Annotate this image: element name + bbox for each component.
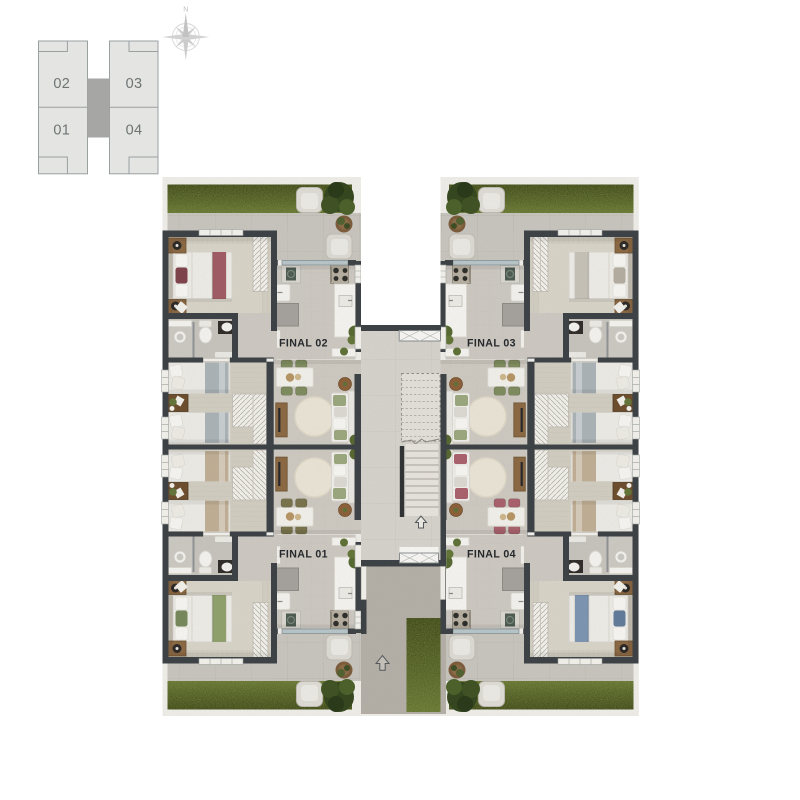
svg-text:N: N xyxy=(183,7,188,14)
svg-text:FINAL 02: FINAL 02 xyxy=(279,338,328,350)
svg-text:03: 03 xyxy=(126,76,143,92)
svg-text:01: 01 xyxy=(53,123,70,139)
svg-text:04: 04 xyxy=(126,123,143,139)
svg-text:FINAL 04: FINAL 04 xyxy=(467,549,516,561)
svg-text:FINAL 01: FINAL 01 xyxy=(279,549,328,561)
svg-text:FINAL 03: FINAL 03 xyxy=(467,338,516,350)
svg-text:02: 02 xyxy=(53,76,70,92)
